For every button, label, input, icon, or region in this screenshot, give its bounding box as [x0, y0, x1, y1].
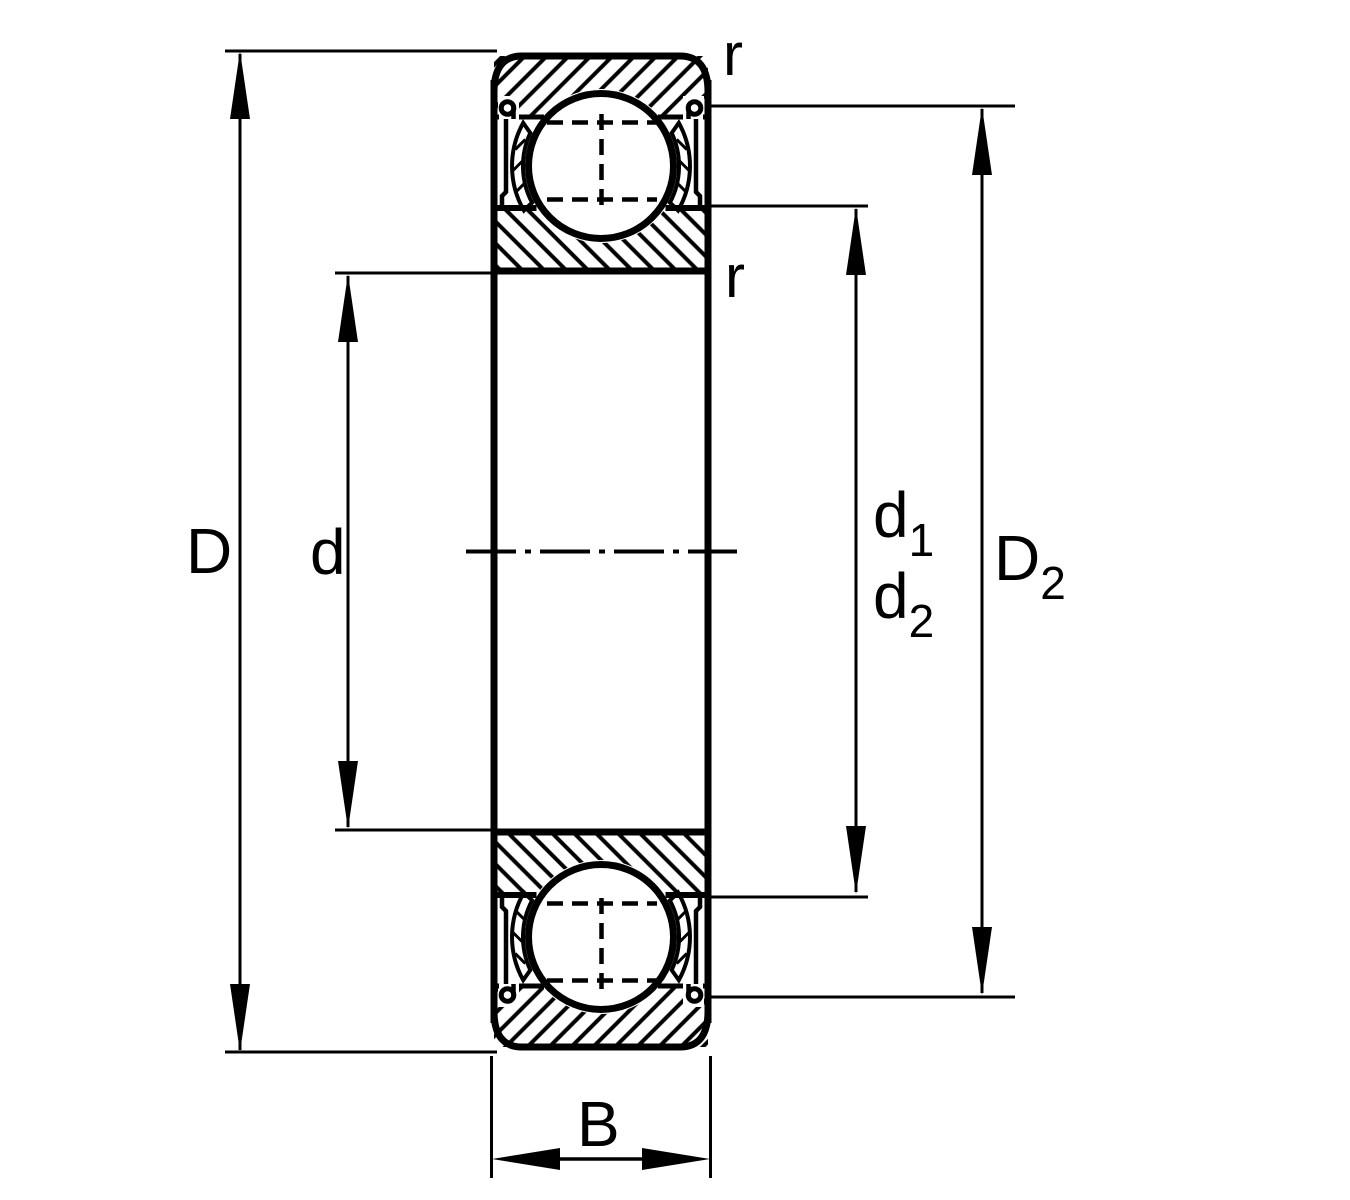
- dimension-D: D: [186, 51, 250, 1052]
- label-corner-radius-outer: r: [723, 21, 743, 88]
- bearing-section-top: [225, 51, 1015, 273]
- arrowhead-down: [230, 984, 250, 1052]
- arrowhead-down: [972, 927, 992, 995]
- label-width: B: [577, 1088, 620, 1160]
- arrowhead-right: [642, 1148, 710, 1170]
- label-outside-diameter: D: [186, 515, 232, 587]
- dimension-D2: D2: [972, 107, 1066, 995]
- bearing-drawing-canvas: D d d1 d2 D2 B r r: [0, 0, 1350, 1200]
- arrowhead-down: [846, 826, 866, 894]
- arrowhead-left: [492, 1148, 560, 1170]
- dimension-d1-d2: d1 d2: [846, 207, 934, 894]
- arrowhead-up: [972, 107, 992, 175]
- label-bore-diameter: d: [310, 516, 346, 588]
- label-d2: d2: [873, 560, 934, 647]
- label-d1: d1: [873, 479, 934, 566]
- dimension-B: B: [492, 1056, 711, 1178]
- arrowhead-up: [846, 207, 866, 275]
- bearing-section-bottom: [225, 830, 1015, 1052]
- arrowhead-down: [338, 761, 358, 829]
- bearing-cross-section-diagram: D d d1 d2 D2 B r r: [0, 0, 1350, 1200]
- label-D2: D2: [994, 522, 1066, 609]
- label-corner-radius-inner: r: [725, 243, 745, 310]
- arrowhead-up: [230, 51, 250, 119]
- dimension-d: d: [310, 274, 358, 829]
- arrowhead-up: [338, 274, 358, 342]
